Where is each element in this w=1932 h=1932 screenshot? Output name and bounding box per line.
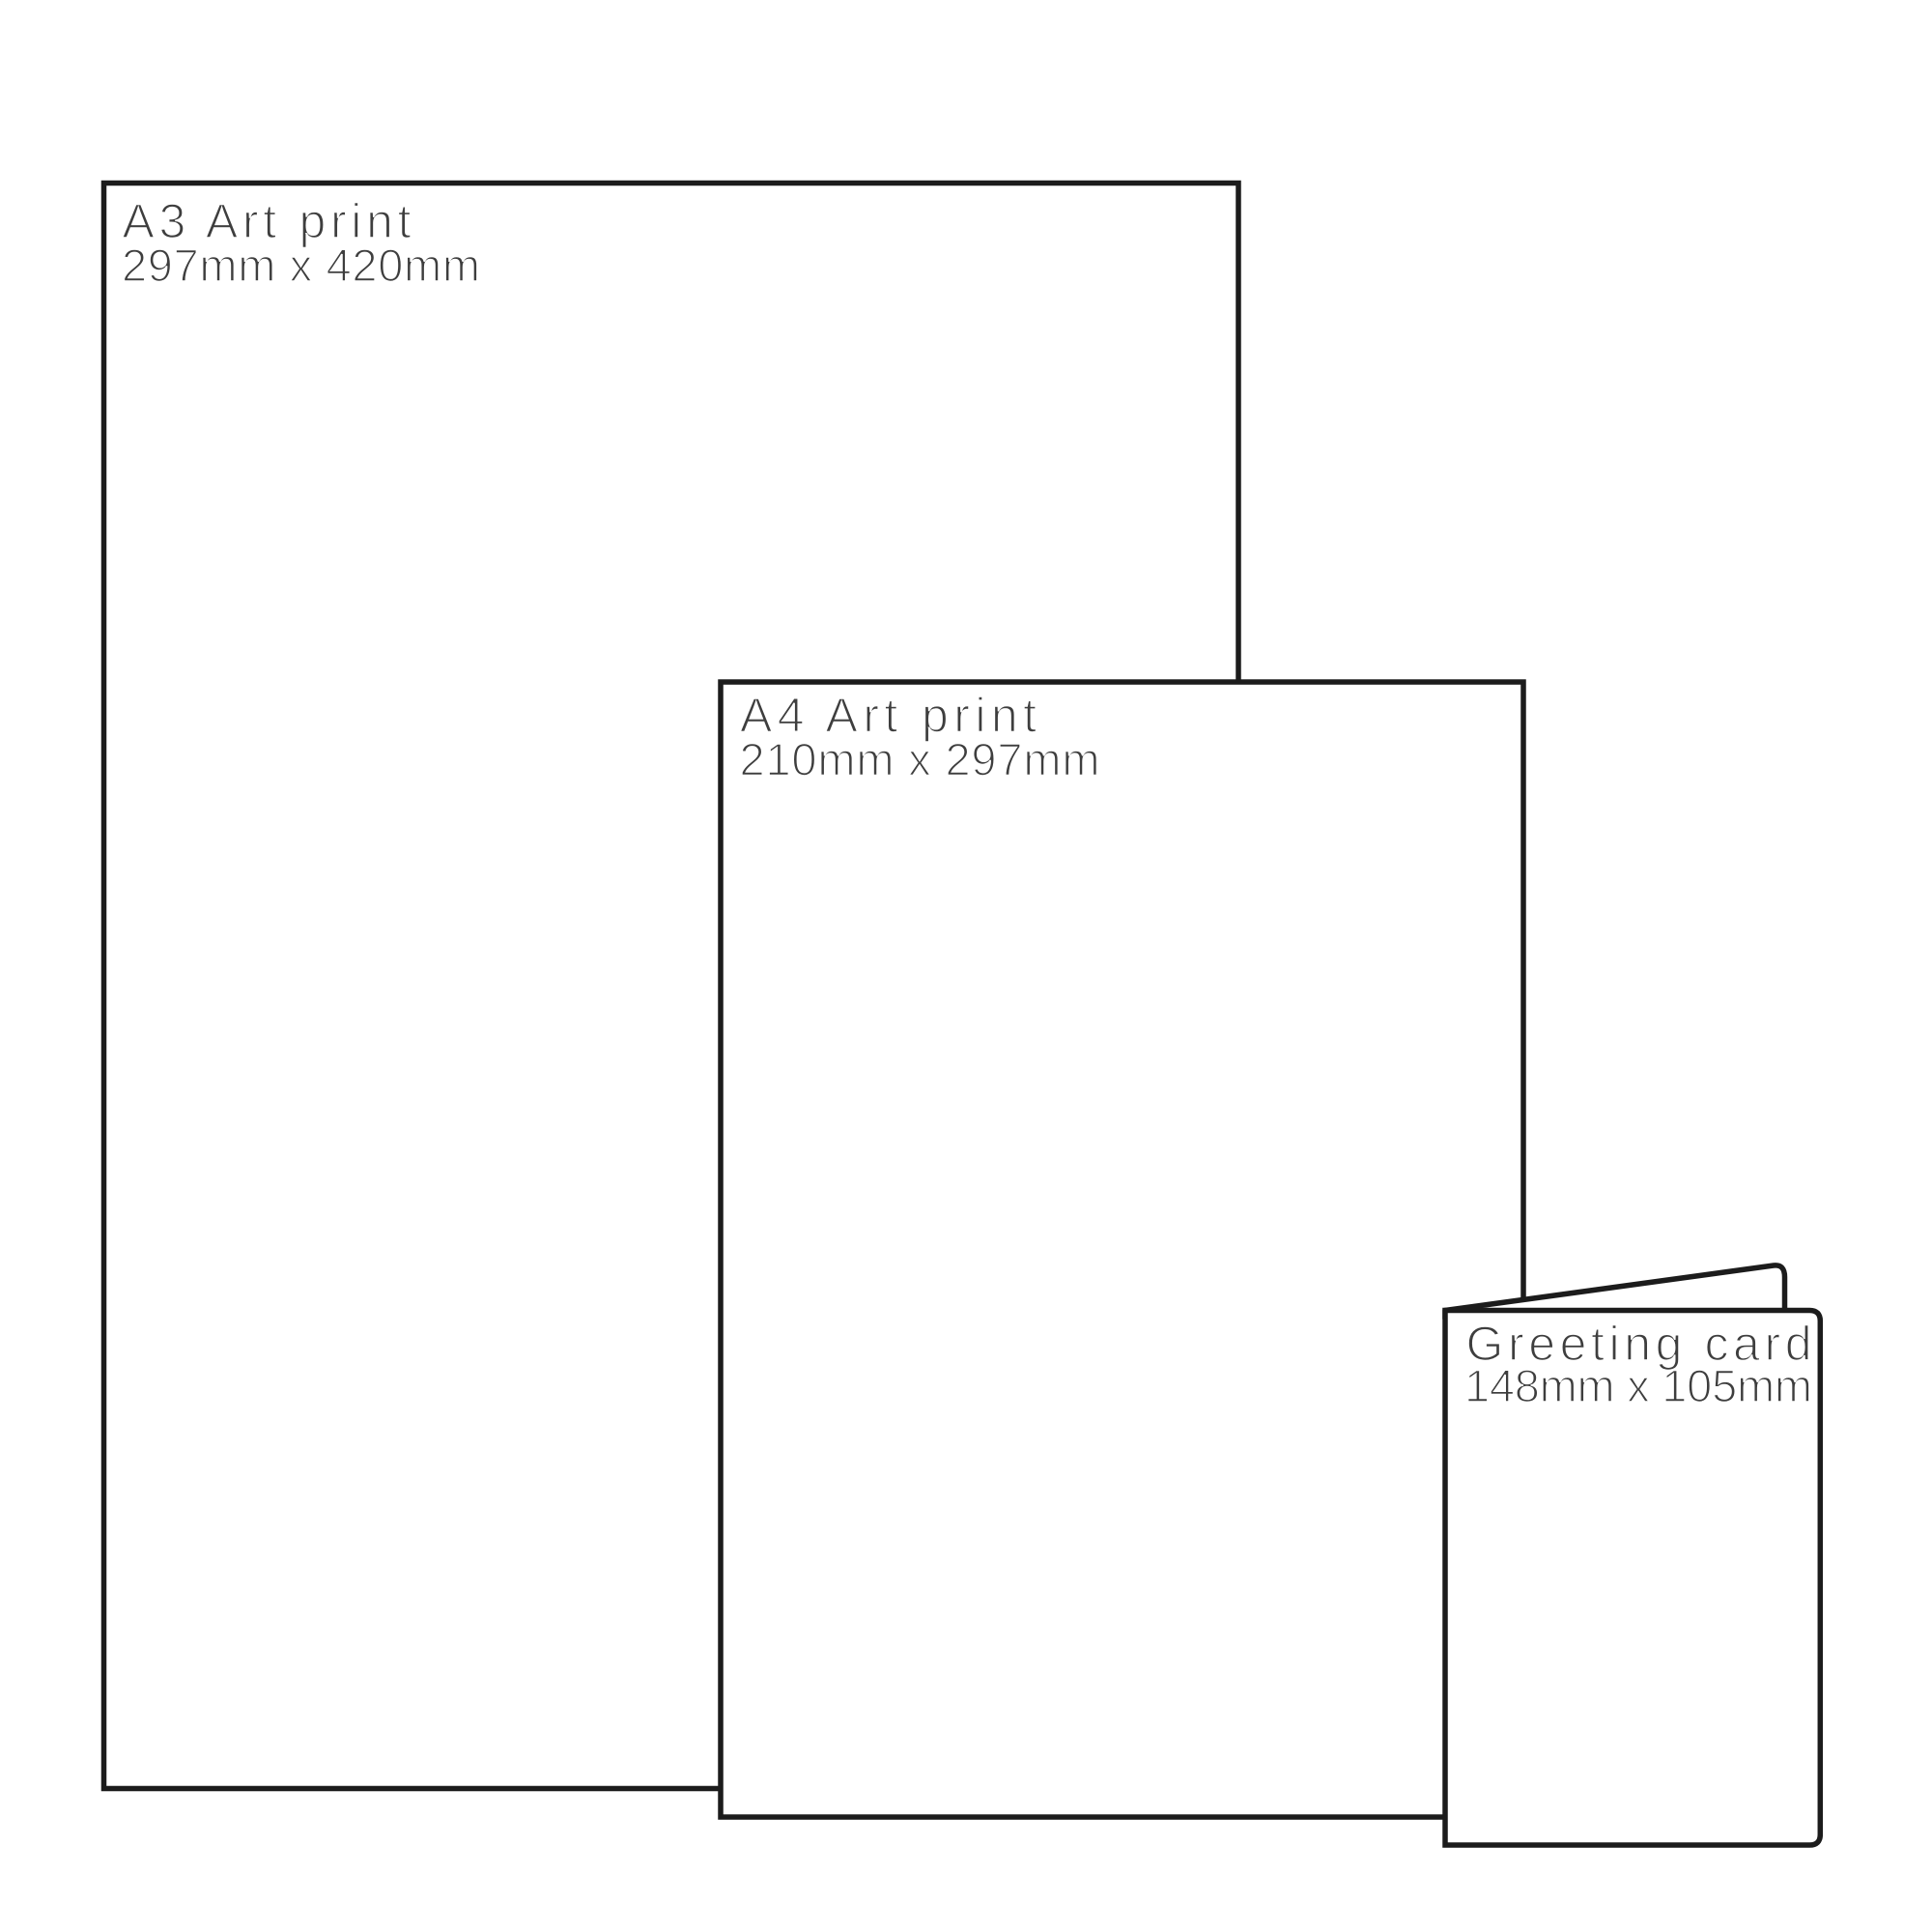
svg-text:297mm x 420mm: 297mm x 420mm [122, 240, 480, 291]
svg-text:210mm x 297mm: 210mm x 297mm [740, 734, 1100, 785]
svg-text:148mm x 105mm: 148mm x 105mm [1464, 1360, 1812, 1411]
